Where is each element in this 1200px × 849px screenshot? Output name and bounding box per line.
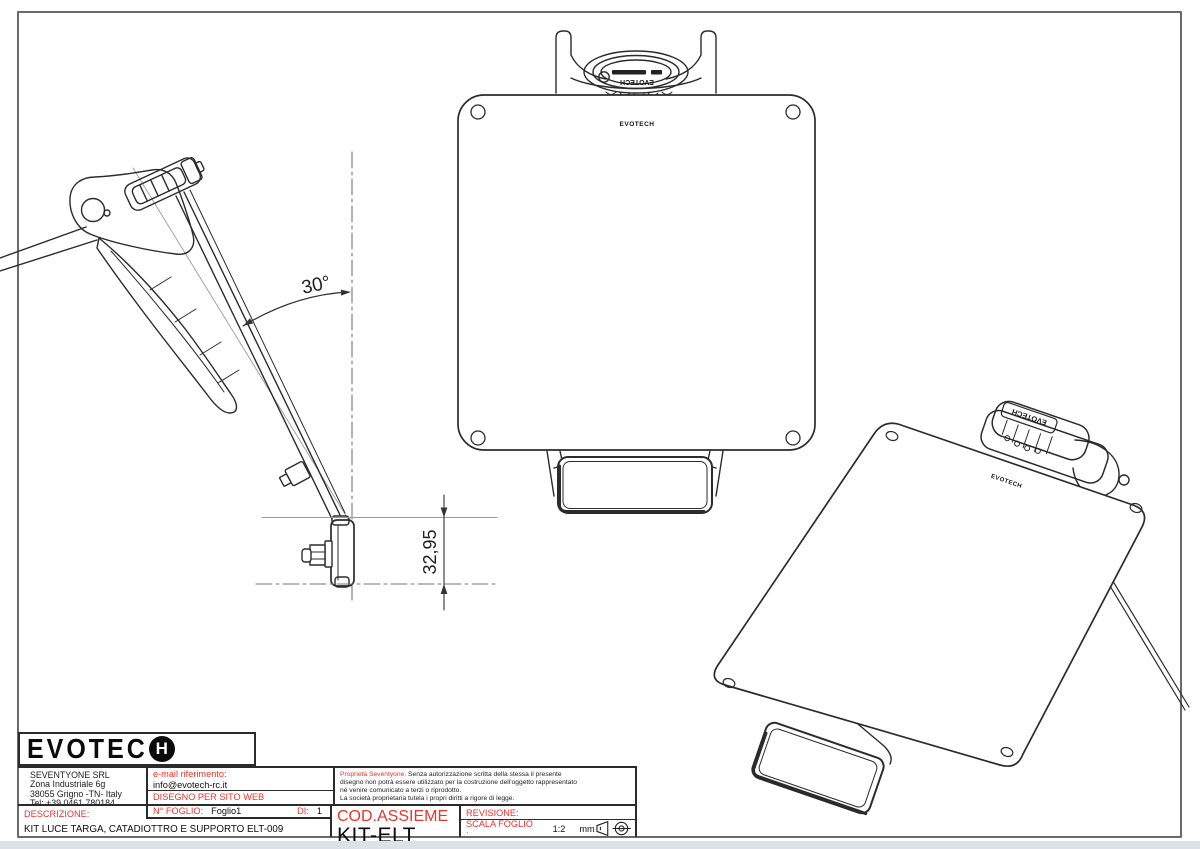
logo-text: EVOTEC — [27, 733, 148, 765]
revision-label: REVISIONE: — [466, 808, 519, 818]
light-post-right — [701, 31, 716, 93]
title-block: EVOTEC H SEVENTYONE SRL Zona Industriale… — [18, 732, 637, 837]
side-view: 32,95 30° — [0, 152, 497, 610]
housing-rib — [161, 175, 169, 191]
email-label: e-mail riferimento: — [153, 769, 333, 780]
light-hook-right — [666, 55, 701, 79]
side-light-housing — [122, 153, 208, 213]
proprietary-line: Proprietà Seventyone. Senza autorizzazio… — [340, 771, 635, 779]
light-code-bar — [651, 70, 662, 75]
dimension-arrow — [441, 508, 448, 518]
sheet-number-cell: N° FOGLIO: Foglio1 DI: 1 — [146, 804, 330, 819]
bracket-hole-small — [104, 210, 110, 216]
scale-cell: SCALA FOGLIO : 1:2 mm — [459, 819, 637, 837]
email-cell: e-mail riferimento: info@evotech-rc.it — [146, 766, 333, 790]
plate-side-profile — [331, 520, 354, 586]
hook-hole — [1119, 475, 1129, 485]
light-rib — [1012, 425, 1018, 442]
height-dimension-label: 32,95 — [420, 529, 440, 574]
blade-rib — [150, 277, 171, 290]
proprietary-line: La società proprietaria tutela i propri … — [340, 795, 635, 803]
blade-rib — [218, 370, 239, 383]
description-label: DESCRIZIONE: — [24, 809, 89, 819]
light-brand-mirrored: EVOTECH — [620, 78, 654, 85]
persp-reflector — [750, 720, 886, 815]
proprietary-line: né venire comunicato a terzi o riprodott… — [340, 787, 635, 795]
projection-cone — [597, 822, 608, 836]
light-hook-left — [571, 55, 606, 79]
light-post-left — [556, 31, 571, 93]
of-value: 1 — [317, 806, 322, 816]
proprietary-text: Senza autorizzazione scritta della stess… — [408, 771, 562, 778]
mount-arm-line — [0, 240, 97, 271]
revision-cell: REVISIONE: — [459, 804, 637, 819]
front-light-unit: EVOTECH — [556, 31, 716, 97]
blade-inner-line — [111, 251, 224, 392]
blade-rib — [175, 309, 196, 322]
scale-value: 1:2 — [553, 824, 566, 834]
window-bottom-strip — [0, 841, 1200, 849]
assembly-code-cell: COD.ASSIEME KIT-ELT — [330, 804, 459, 837]
housing-rib — [140, 185, 148, 201]
front-reflector — [558, 457, 712, 513]
bracket-wing-right — [716, 451, 723, 496]
dimension-arrow — [441, 584, 448, 594]
light-rib — [1046, 437, 1052, 454]
bracket-wing-left — [547, 451, 554, 496]
drawing-purpose-label: DISEGNO PER SITO WEB — [153, 792, 264, 802]
first-angle-projection-icon — [595, 820, 632, 837]
drawing-root: 32,95 30° EVOTECH — [0, 12, 1189, 837]
bracket-hole-large — [82, 199, 105, 222]
evotech-logo: EVOTEC H — [18, 732, 256, 766]
description-value: KIT LUCE TARGA, CATADIOTTRO E SUPPORTO E… — [24, 824, 283, 835]
plate-brand-label: EVOTECH — [620, 121, 655, 128]
of-group: DI: 1 — [297, 806, 322, 816]
sheet-number-value: Foglio1 — [211, 806, 241, 816]
logo-h-circle: H — [149, 736, 175, 762]
proprietary-notice-cell: Proprietà Seventyone. Senza autorizzazio… — [333, 766, 637, 804]
bolt-head — [310, 545, 325, 565]
plate-persp-outline — [714, 423, 1144, 766]
technical-drawing-canvas: 32,95 30° EVOTECH — [0, 0, 1200, 849]
spine-line — [184, 192, 340, 515]
mount-arm-line — [0, 227, 86, 258]
light-code-bar — [612, 70, 646, 75]
bolt-tip — [302, 549, 311, 562]
front-view: EVOTECH EVOTECH — [458, 31, 815, 513]
drawing-purpose-cell: DISEGNO PER SITO WEB — [146, 790, 333, 804]
spine-line — [190, 190, 345, 513]
perspective-view: EVOTECH EVOTECH — [714, 396, 1189, 816]
scale-label: SCALA FOGLIO : — [466, 819, 537, 839]
sheet-number-label: N° FOGLIO: — [153, 806, 203, 816]
email-value: info@evotech-rc.it — [153, 780, 333, 791]
proprietary-line: disegno non potrà essere utilizzato per … — [340, 779, 635, 787]
blade-rib — [200, 342, 221, 355]
scale-unit: mm — [579, 824, 594, 834]
bolt-washer — [325, 541, 332, 567]
logo-h-letter: H — [156, 739, 168, 759]
plate-front-outline — [458, 95, 815, 450]
light-brand-label: EVOTECH — [620, 78, 654, 85]
proprietary-lead: Proprietà Seventyone. — [340, 771, 406, 778]
housing-rib — [151, 180, 159, 196]
angle-arc — [243, 292, 348, 326]
reflector-outline — [558, 457, 712, 513]
blade-outline — [97, 238, 237, 413]
light-rib — [1002, 420, 1007, 434]
angle-arrow — [341, 290, 351, 296]
of-label: DI: — [297, 806, 309, 816]
company-info-cell: SEVENTYONE SRL Zona Industriale 6g 38055… — [18, 766, 146, 804]
